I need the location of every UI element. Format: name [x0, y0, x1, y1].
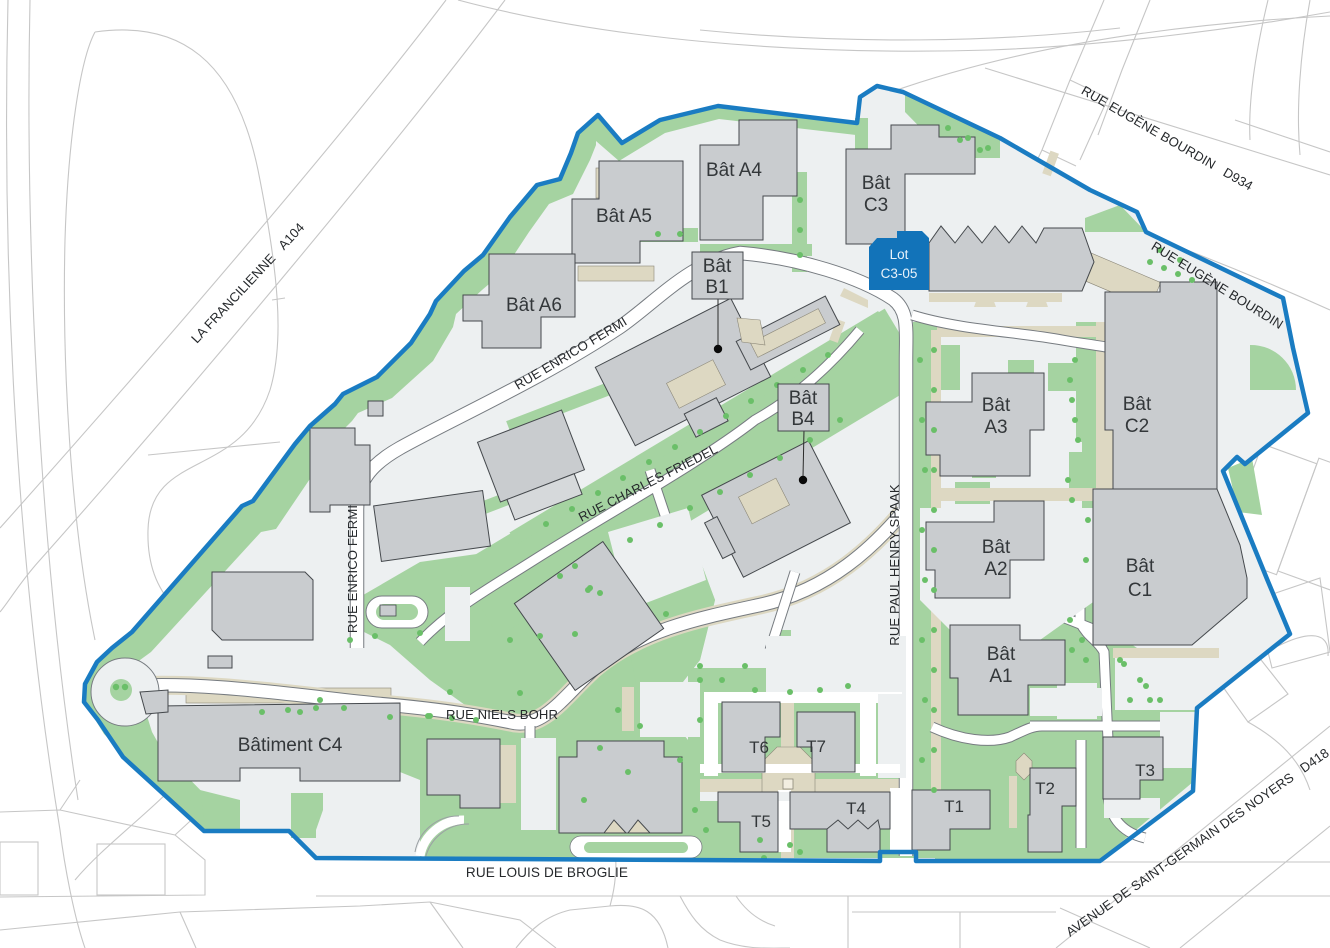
svg-text:Bât: Bât [1123, 394, 1152, 415]
svg-text:Bât: Bât [982, 537, 1011, 558]
svg-text:Bât: Bât [789, 388, 818, 409]
svg-text:T5: T5 [751, 812, 771, 831]
svg-text:A2: A2 [984, 559, 1007, 580]
svg-text:Bât A6: Bât A6 [506, 295, 562, 316]
svg-text:A3: A3 [984, 417, 1007, 438]
svg-text:Bât: Bât [1126, 556, 1155, 577]
svg-text:Bât: Bât [987, 644, 1016, 665]
svg-text:RUE LOUIS DE BROGLIE: RUE LOUIS DE BROGLIE [466, 865, 628, 880]
svg-text:T7: T7 [806, 737, 826, 756]
svg-text:RUE NIELS BOHR: RUE NIELS BOHR [446, 707, 558, 722]
svg-text:C3: C3 [864, 195, 888, 216]
svg-text:T6: T6 [749, 738, 769, 757]
svg-text:Lot: Lot [890, 247, 909, 262]
svg-text:Bât: Bât [703, 256, 732, 277]
svg-text:Bât: Bât [982, 395, 1011, 416]
svg-text:B4: B4 [791, 409, 815, 430]
svg-text:T4: T4 [846, 799, 866, 818]
svg-text:Bât A5: Bât A5 [596, 206, 652, 227]
svg-text:C3-05: C3-05 [881, 266, 918, 281]
svg-text:RUE PAUL HENRY SPAAK: RUE PAUL HENRY SPAAK [887, 484, 902, 646]
svg-text:RUE ENRICO FERMI: RUE ENRICO FERMI [345, 505, 360, 633]
svg-text:Bâtiment C4: Bâtiment C4 [238, 735, 343, 756]
svg-text:T2: T2 [1035, 779, 1055, 798]
svg-text:Bât: Bât [862, 173, 891, 194]
svg-text:C2: C2 [1125, 416, 1149, 437]
svg-text:C1: C1 [1128, 580, 1152, 601]
svg-text:Bât A4: Bât A4 [706, 160, 762, 181]
svg-text:T1: T1 [944, 797, 964, 816]
svg-text:A1: A1 [989, 666, 1012, 687]
svg-text:B1: B1 [705, 277, 728, 298]
svg-text:T3: T3 [1135, 761, 1155, 780]
